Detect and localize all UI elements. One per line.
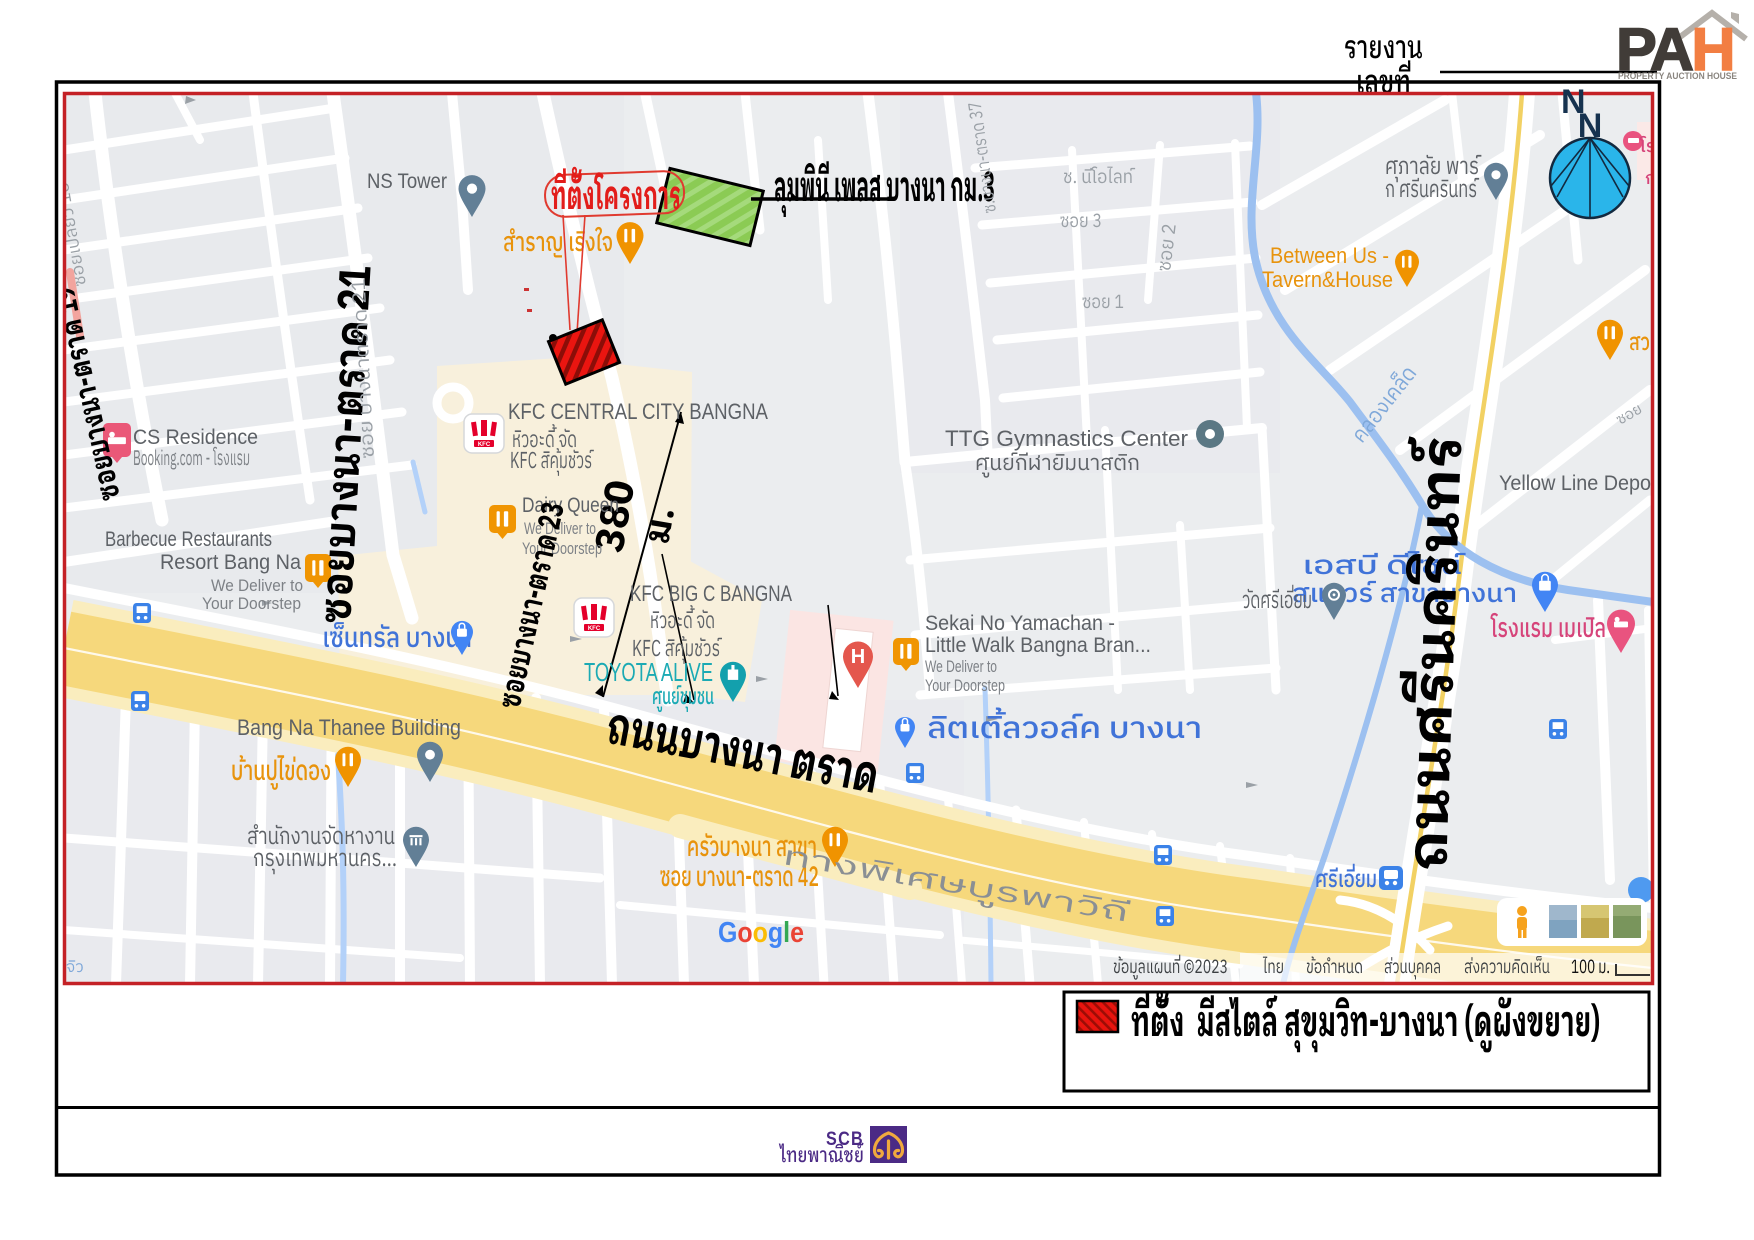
svg-text:TTG Gymnastics Center: TTG Gymnastics Center [945, 426, 1188, 451]
svg-text:KFC: KFC [478, 442, 491, 448]
svg-text:PROPERTY AUCTION HOUSE: PROPERTY AUCTION HOUSE [1618, 71, 1737, 81]
svg-text:We Deliver to: We Deliver to [211, 576, 303, 595]
svg-text:Google: Google [718, 917, 804, 949]
svg-text:Tavern&House: Tavern&House [1262, 267, 1393, 292]
svg-text:Barbecue Restaurants: Barbecue Restaurants [105, 528, 272, 551]
svg-text:KFC BIG C BANGNA: KFC BIG C BANGNA [630, 581, 792, 606]
svg-text:H: H [851, 646, 865, 668]
svg-text:TOYOTA ALIVE: TOYOTA ALIVE [584, 657, 713, 687]
svg-text:Your Doorstep: Your Doorstep [925, 676, 1005, 695]
svg-text:Resort Bang Na: Resort Bang Na [160, 551, 301, 574]
svg-text:CS Residence: CS Residence [133, 426, 258, 449]
svg-text:Little Walk Bangna Bran...: Little Walk Bangna Bran... [925, 634, 1151, 657]
svg-text:Your Doorstep: Your Doorstep [522, 539, 602, 558]
svg-text:Your Doorstep: Your Doorstep [202, 594, 301, 613]
svg-text:We Deliver to: We Deliver to [925, 657, 997, 676]
svg-text:Sekai No Yamachan -: Sekai No Yamachan - [925, 612, 1115, 635]
svg-text:KFC CENTRAL CITY BANGNA: KFC CENTRAL CITY BANGNA [508, 399, 768, 424]
svg-text:NS Tower: NS Tower [367, 170, 447, 193]
svg-text:Bang Na Thanee Building: Bang Na Thanee Building [237, 715, 461, 740]
svg-text:Dairy Queen: Dairy Queen [522, 494, 619, 517]
svg-text:KFC: KFC [588, 626, 601, 632]
svg-text:Yellow Line Depo: Yellow Line Depo [1499, 472, 1651, 495]
svg-text:N: N [1561, 83, 1586, 121]
svg-text:Between Us -: Between Us - [1270, 243, 1389, 268]
